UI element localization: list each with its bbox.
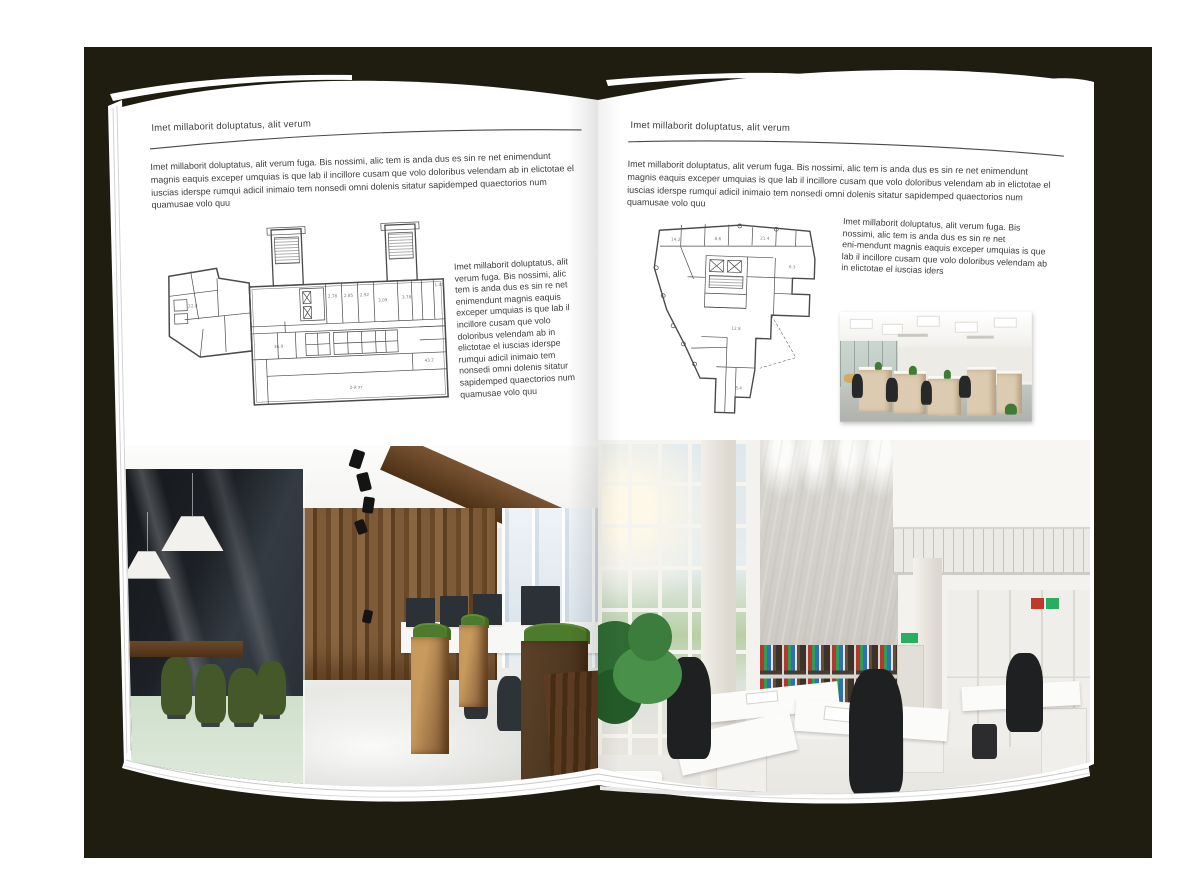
right-page-title: Imet millaborit doluptatus, alit verum	[630, 120, 790, 134]
glass-panel-edge	[303, 469, 305, 789]
office-chair	[1006, 653, 1043, 732]
meeting-table	[118, 641, 243, 657]
svg-text:2.85: 2.85	[344, 293, 354, 298]
svg-text:5.4: 5.4	[735, 385, 742, 390]
pendant-lamp-stem	[147, 512, 148, 551]
office-chair	[921, 381, 933, 405]
ceiling-vent	[967, 336, 994, 339]
office-chair	[851, 373, 863, 397]
svg-text:22.8: 22.8	[188, 303, 198, 308]
ceiling-light	[993, 317, 1016, 328]
pendant-lamp-stem	[192, 473, 193, 516]
wood-planter	[459, 625, 488, 707]
svg-text:43.2: 43.2	[424, 357, 434, 362]
svg-text:2.78: 2.78	[328, 293, 338, 298]
exit-sign	[901, 633, 918, 643]
safety-sign-green	[1046, 598, 1059, 610]
office-chair	[886, 378, 898, 402]
green-chair	[228, 668, 259, 723]
left-intro-paragraph: Imet millaborit doluptatus, alit verum f…	[150, 149, 575, 212]
spine-shadow-left	[568, 60, 598, 776]
floor-plan-left: 2.78 2.85 2.92 3.09 3.78 1.43 22.8 36.9 …	[151, 218, 459, 420]
left-page-title: Imet millaborit doluptatus, alit verum	[151, 118, 311, 133]
svg-text:12.8: 12.8	[731, 326, 741, 331]
green-chair	[257, 661, 286, 716]
concrete-wall	[760, 440, 898, 661]
safety-sign-red	[1031, 598, 1044, 610]
right-header-rule	[628, 136, 1064, 160]
ceiling-light	[955, 322, 978, 333]
floor-plan-right-walls	[650, 221, 816, 415]
track-spotlight	[362, 496, 375, 513]
svg-text:21.4: 21.4	[760, 236, 770, 241]
svg-text:8.6: 8.6	[715, 236, 722, 241]
desk-plant	[909, 366, 917, 375]
right-page: Imet millaborit doluptatus, alit verum I…	[598, 58, 1090, 776]
floor-plan-left-walls	[165, 221, 448, 408]
green-chair	[195, 664, 226, 723]
svg-text:36.9: 36.9	[274, 344, 284, 349]
ceiling-vent	[897, 334, 928, 337]
floor-plan-right: 14.2 8.6 21.4 6.3 12.8 5.4	[637, 215, 832, 421]
ceiling-light	[849, 318, 872, 329]
right-small-photo	[840, 312, 1032, 422]
desk-plant	[944, 370, 952, 379]
spine-shadow-right	[598, 58, 620, 776]
svg-text:2-й эт: 2-й эт	[350, 384, 364, 390]
right-office-photo	[598, 440, 1090, 834]
desk-unit	[967, 367, 996, 416]
office-chair	[497, 676, 523, 731]
monitor	[521, 586, 559, 627]
right-side-paragraph: Imet millaborit doluptatus, alit verum f…	[841, 216, 1049, 282]
waste-bin	[972, 724, 997, 759]
green-chair	[161, 657, 192, 716]
office-chair	[849, 669, 903, 795]
right-intro-paragraph: Imet millaborit doluptatus, alit verum f…	[627, 158, 1056, 217]
potted-plant-leaves	[628, 613, 672, 660]
wood-planter	[411, 637, 449, 754]
svg-text:3.09: 3.09	[378, 297, 388, 302]
svg-text:1.43: 1.43	[434, 282, 444, 287]
left-side-paragraph: Imet millaborit doluptatus, alit verum f…	[454, 256, 583, 401]
office-chair	[959, 375, 971, 397]
svg-text:3.78: 3.78	[402, 294, 412, 299]
desk-plant	[1005, 404, 1017, 415]
left-page: Imet millaborit doluptatus, alit verum I…	[114, 60, 598, 776]
desk-plant	[874, 361, 882, 370]
magazine-mockup-scene: Imet millaborit doluptatus, alit verum I…	[0, 0, 1200, 891]
svg-text:14.2: 14.2	[671, 237, 681, 242]
svg-text:2.92: 2.92	[360, 292, 370, 297]
desk-unit	[928, 376, 961, 416]
ceiling-light	[917, 316, 940, 327]
svg-text:6.3: 6.3	[789, 264, 796, 269]
